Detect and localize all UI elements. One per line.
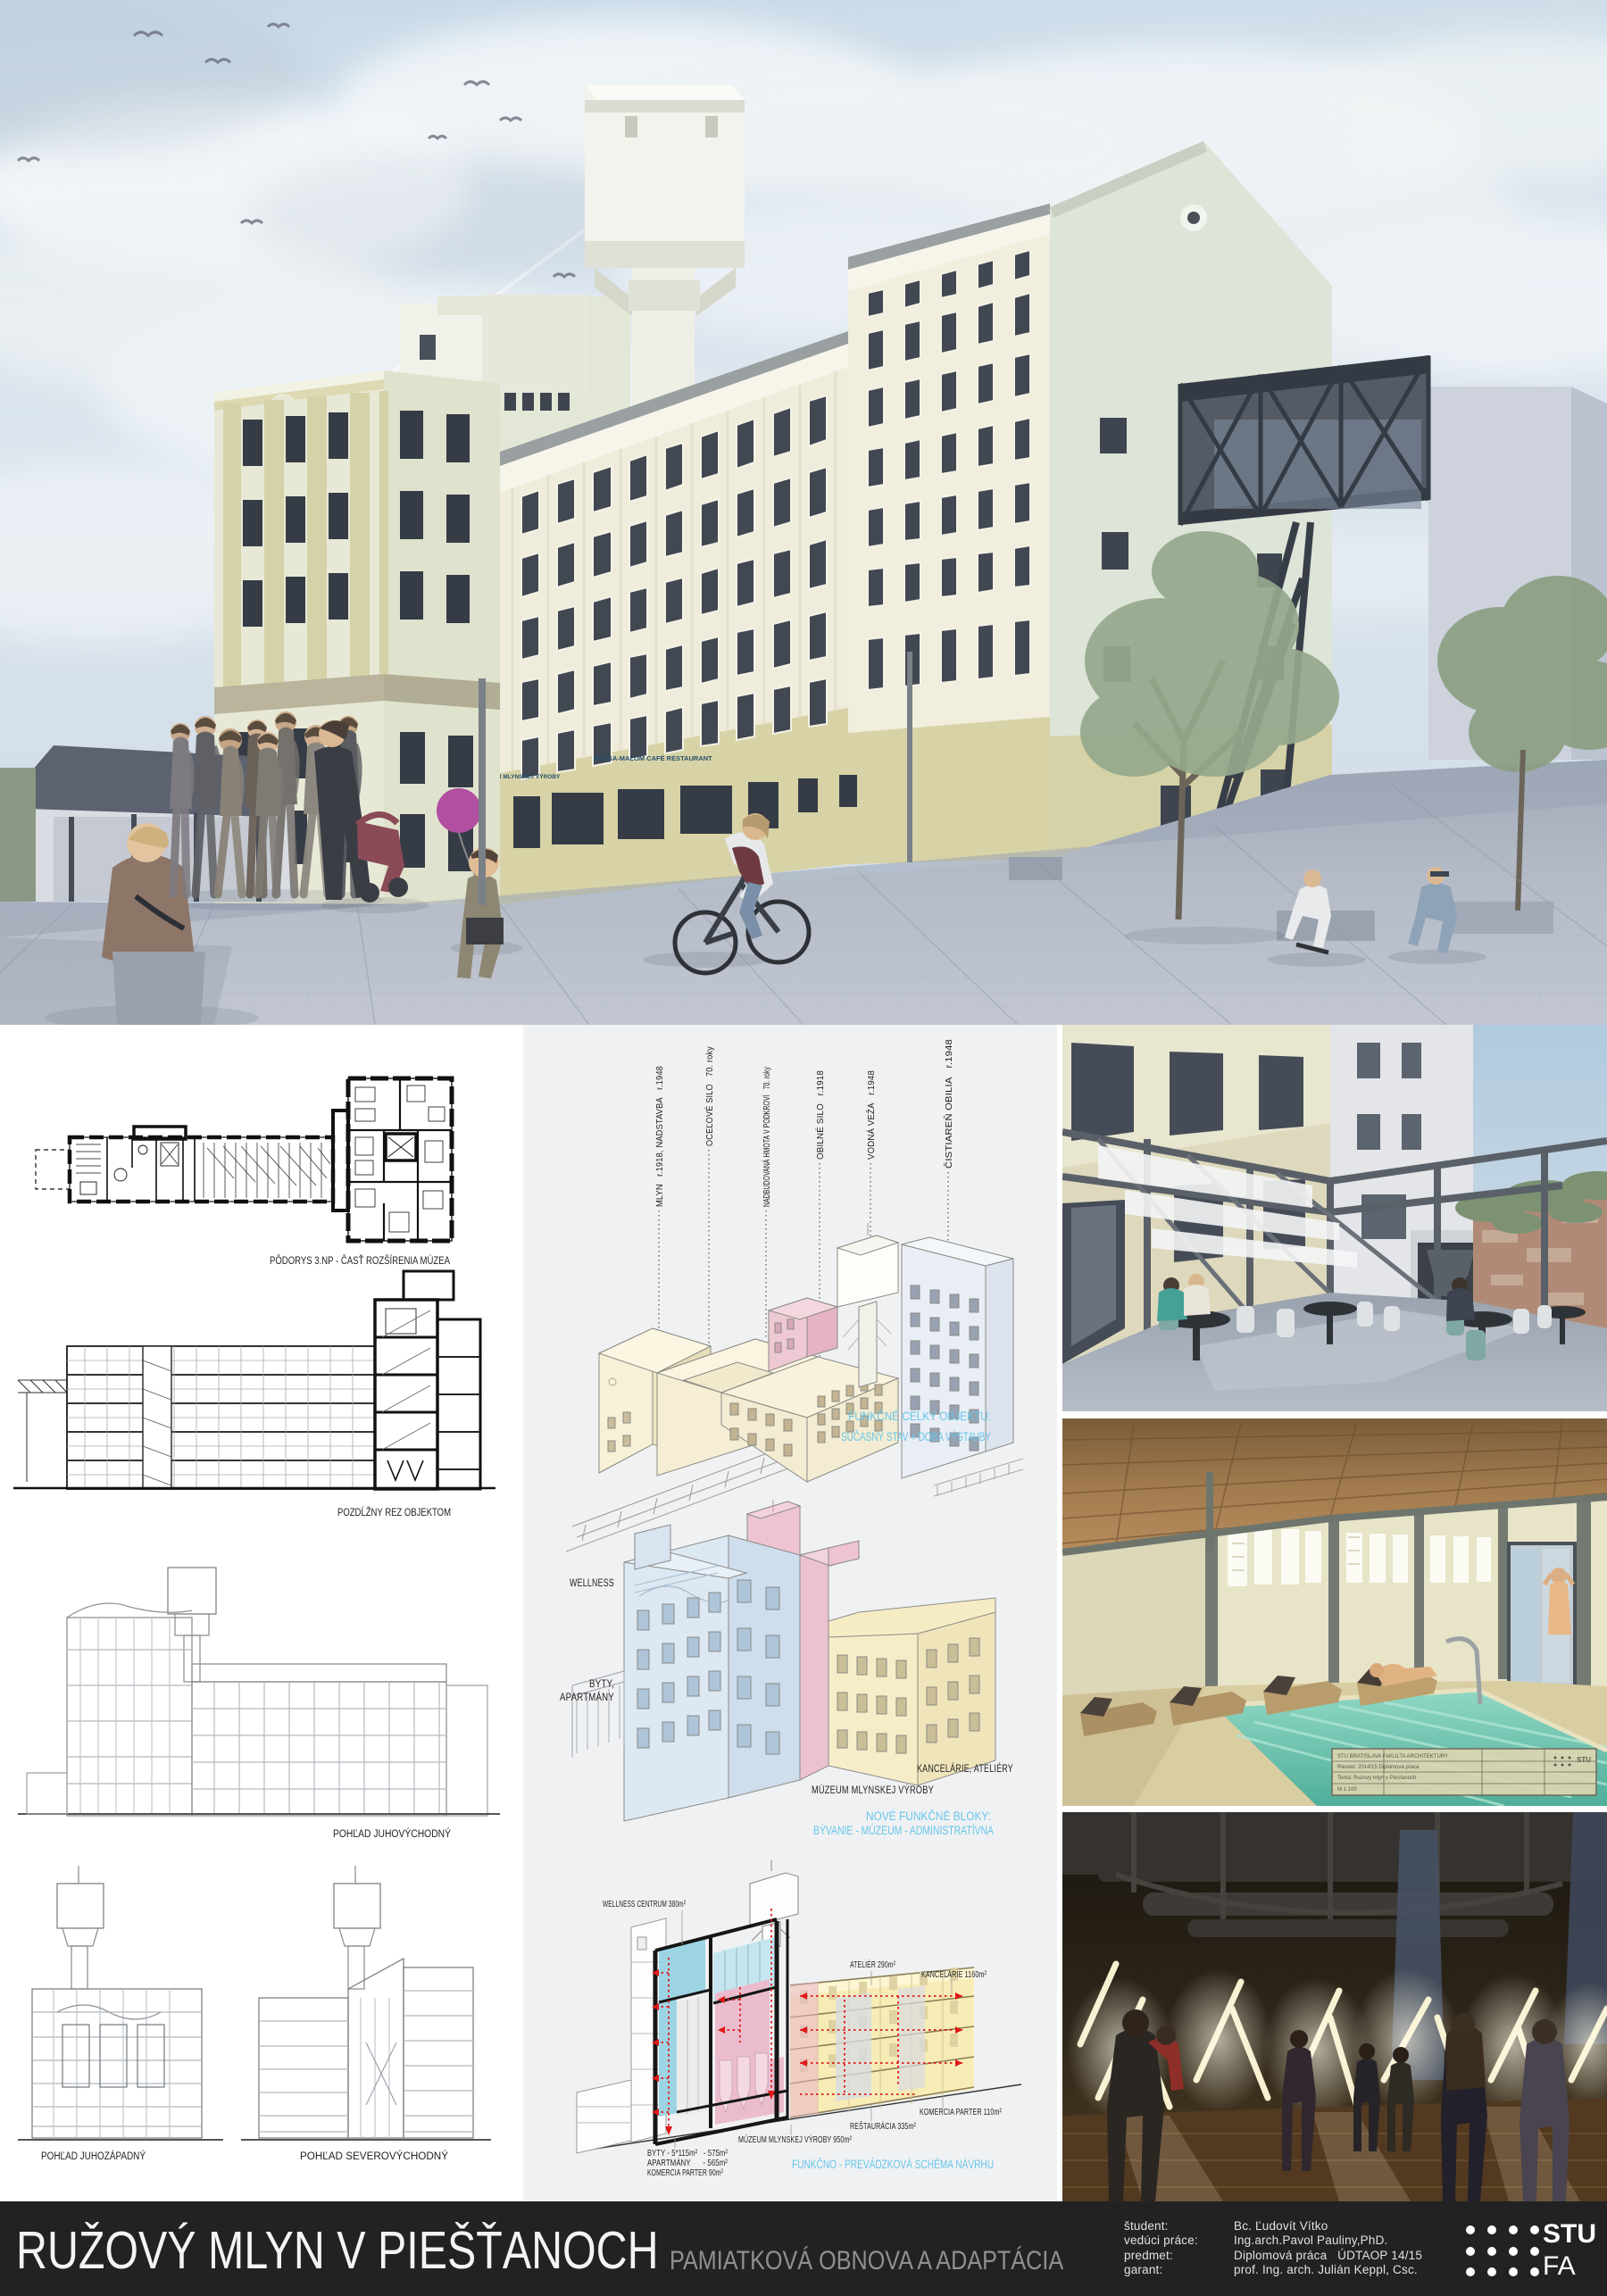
svg-text:KANCELÁRIE, ATELIÉRY: KANCELÁRIE, ATELIÉRY: [917, 1763, 1013, 1775]
svg-text:NOVÉ FUNKČNÉ BLOKY:: NOVÉ FUNKČNÉ BLOKY:: [866, 1809, 991, 1823]
svg-text:WELLNESS CENTRUM 380m²: WELLNESS CENTRUM 380m²: [603, 1899, 686, 1909]
svg-text:POHĽAD JUHOVÝCHODNÝ: POHĽAD JUHOVÝCHODNÝ: [333, 1828, 451, 1840]
svg-text:APARTMÁNY: APARTMÁNY: [560, 1692, 614, 1703]
svg-text:POHĽAD JUHOZÁPADNÝ: POHĽAD JUHOZÁPADNÝ: [41, 2150, 146, 2162]
svg-text:RÓZSA-MALOM CAFÉ RESTAURANT: RÓZSA-MALOM CAFÉ RESTAURANT: [594, 754, 712, 762]
svg-text:FA: FA: [1543, 2251, 1576, 2280]
svg-text:BYTY,: BYTY,: [589, 1679, 614, 1690]
svg-text:WELLNESS: WELLNESS: [570, 1578, 614, 1589]
svg-text:OBILNÉ SILO r.1918: OBILNÉ SILO r.1918: [814, 1070, 826, 1160]
svg-text:KANCELÁRIE 1160m²: KANCELÁRIE 1160m²: [921, 1968, 987, 1980]
svg-text:SÚČASNÝ STAV + DOBA VÝSTAVBY: SÚČASNÝ STAV + DOBA VÝSTAVBY: [841, 1430, 991, 1443]
svg-text:FUNKČNO - PREVÁDZKOVÁ SCHÉMA N: FUNKČNO - PREVÁDZKOVÁ SCHÉMA NÁVRHU: [792, 2158, 994, 2171]
svg-text:MÚZEUM MLYNSKEJ VÝROBY 950m²: MÚZEUM MLYNSKEJ VÝROBY 950m²: [738, 2134, 852, 2145]
svg-text:ČISTIAREŇ OBILIA r.1948: ČISTIAREŇ OBILIA r.1948: [943, 1039, 954, 1169]
svg-text:BÝVANIE - MÚZEUM - ADMINIST: BÝVANIE - MÚZEUM - ADMINISTRATÍVNA: [813, 1824, 994, 1837]
svg-text:NADBUDOVANÁ HMOTA V PODKROVÍ: NADBUDOVANÁ HMOTA V PODKROVÍ 70. roky: [761, 1067, 772, 1207]
svg-text:KOMERCIA PARTER 110m²: KOMERCIA PARTER 110m²: [920, 2107, 1002, 2117]
svg-text:Tema: Ruzovy mlyn v Piestanoc: Tema: Ruzovy mlyn v Piestanoch: [1337, 1776, 1416, 1781]
svg-text:REŠTAURÁCIA 335m²: REŠTAURÁCIA 335m²: [850, 2120, 916, 2132]
svg-text:ATELIÉR 290m²: ATELIÉR 290m²: [850, 1959, 895, 1970]
svg-text:MÚZEUM MLYNSKEJ VÝROBY: MÚZEUM MLYNSKEJ VÝROBY: [812, 1784, 934, 1796]
svg-text:OCEĽOVÉ SILO 70. roky: OCEĽOVÉ SILO 70. roky: [704, 1046, 715, 1146]
svg-text:Riesitel: 2014/15 Diplomova: Riesitel: 2014/15 Diplomova praca: [1337, 1765, 1420, 1770]
svg-text:PÔDORYS 3.NP - ČASŤ ROZŠÍRENIA: PÔDORYS 3.NP - ČASŤ ROZŠÍRENIA MÚZEA: [270, 1255, 450, 1267]
svg-text:VODNÁ VEŽA r.1948: VODNÁ VEŽA r.1948: [865, 1070, 877, 1160]
svg-text:MLYN r.1918, NADSTAVBA r.1: MLYN r.1918, NADSTAVBA r.1948: [654, 1066, 665, 1207]
svg-text:POZDĹŽNY REZ OBJEKTOM: POZDĹŽNY REZ OBJEKTOM: [337, 1507, 451, 1518]
svg-text:STU BRATISLAVA FAKULTA ARCHIT: STU BRATISLAVA FAKULTA ARCHITEKTURY: [1337, 1754, 1448, 1759]
svg-text:KOMERCIA PARTER 90m²: KOMERCIA PARTER 90m²: [647, 2167, 723, 2178]
svg-text:STU: STU: [1543, 2223, 1596, 2249]
svg-text:FUNKČNÉ CELKY OBJEKTU:: FUNKČNÉ CELKY OBJEKTU:: [848, 1410, 991, 1423]
svg-text:POHĽAD SEVEROVÝCHODNÝ: POHĽAD SEVEROVÝCHODNÝ: [300, 2150, 448, 2162]
svg-text:STU: STU: [1577, 1756, 1591, 1764]
svg-text:M 1:100: M 1:100: [1337, 1787, 1357, 1793]
